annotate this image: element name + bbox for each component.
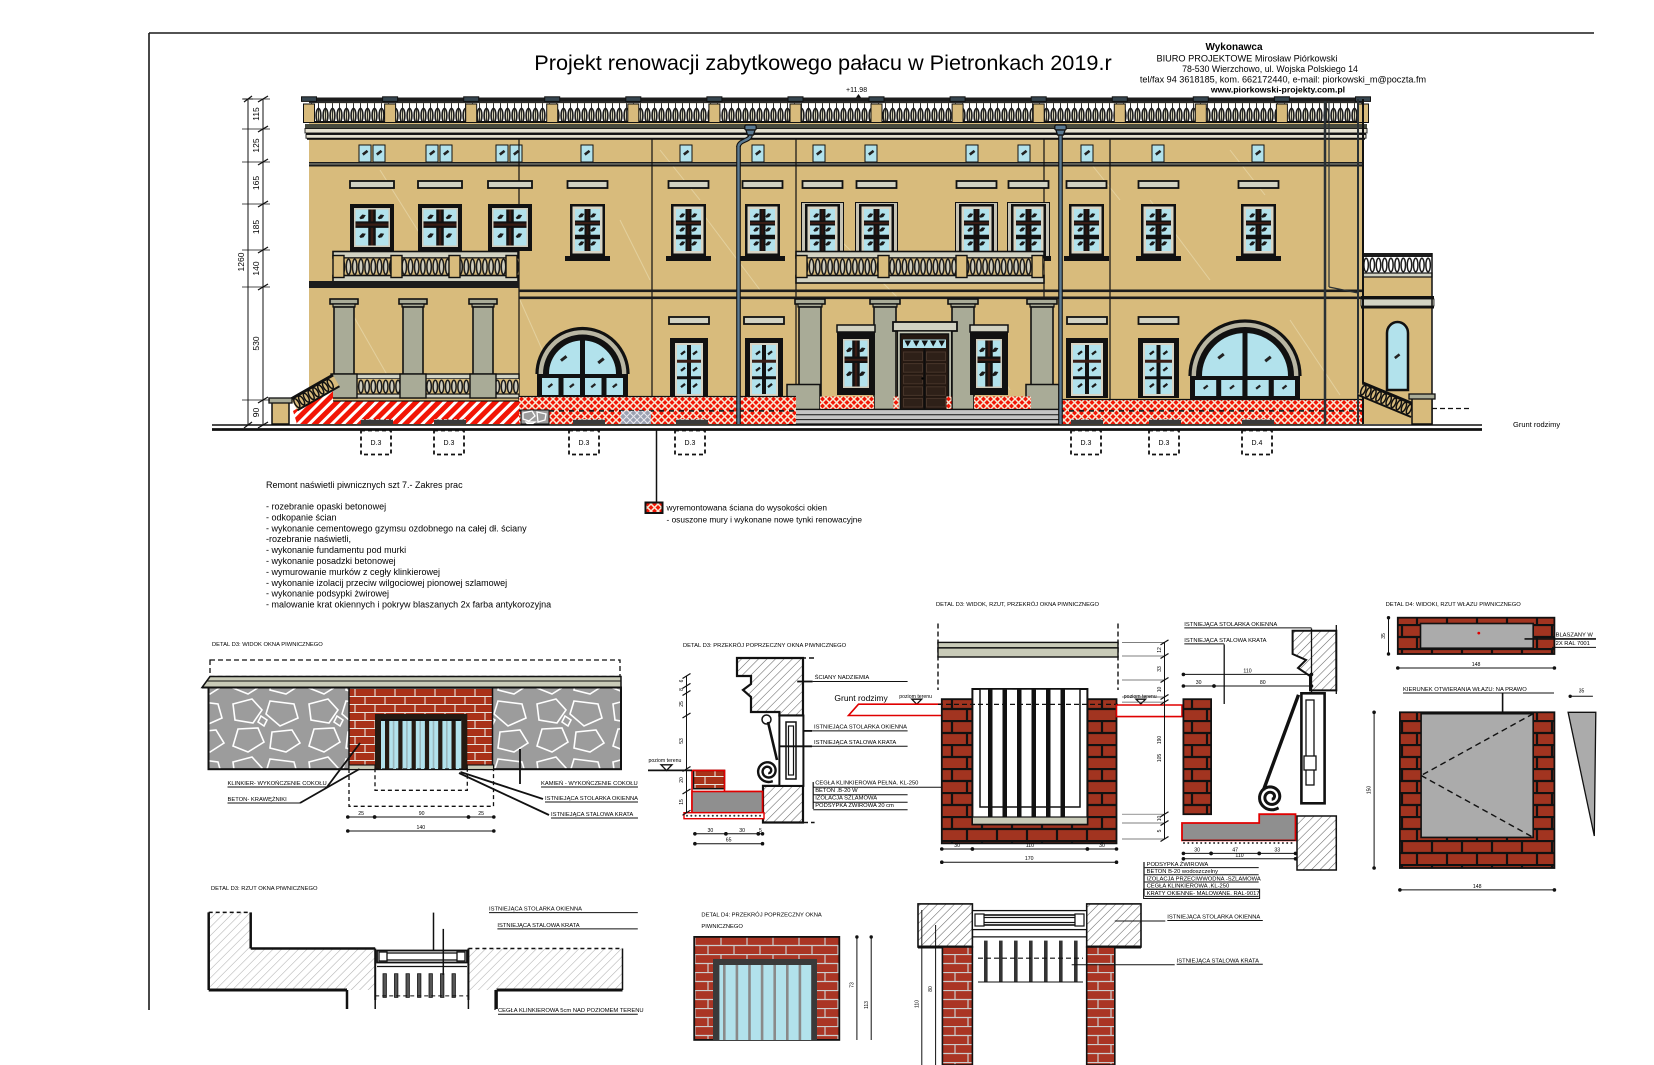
svg-text:6: 6 <box>679 679 685 682</box>
svg-text:- osuszone mury i wykonane now: - osuszone mury i wykonane nowe tynki re… <box>667 515 863 525</box>
svg-text:DETAL D4: WIDOKI, RZUT WŁAZU P: DETAL D4: WIDOKI, RZUT WŁAZU PIWNICZNEGO <box>1386 602 1522 608</box>
svg-text:35: 35 <box>1579 689 1585 695</box>
svg-text:D.3: D.3 <box>685 440 696 447</box>
svg-text:2X RAL 7001: 2X RAL 7001 <box>1556 641 1590 647</box>
svg-text:ISTNIEJĄCA STALOWA KRATA: ISTNIEJĄCA STALOWA KRATA <box>551 812 633 818</box>
svg-text:BLASZANY W: BLASZANY W <box>1556 633 1594 639</box>
svg-text:- wykonanie izolacij przeciw w: - wykonanie izolacij przeciw wilgociowej… <box>266 578 507 588</box>
svg-text:poziom terenu: poziom terenu <box>649 758 682 764</box>
svg-text:Projekt renowacji zabytkowego: Projekt renowacji zabytkowego pałacu w P… <box>534 50 1111 75</box>
svg-text:33: 33 <box>1157 666 1163 672</box>
svg-text:Grunt rodzimy: Grunt rodzimy <box>1513 420 1560 429</box>
svg-text:33: 33 <box>1274 847 1280 853</box>
svg-text:- wykonanie fundamentu pod mur: - wykonanie fundamentu pod murki <box>266 545 406 555</box>
svg-text:530: 530 <box>251 336 261 350</box>
svg-text:ISTNIEJĄCA STALOWA KRATA: ISTNIEJĄCA STALOWA KRATA <box>497 923 579 929</box>
svg-text:DETAL D3: WIDOK, RZUT, PRZEKRÓ: DETAL D3: WIDOK, RZUT, PRZEKRÓJ OKNA PIW… <box>936 601 1099 608</box>
svg-text:ISTNIEJĄCA STOLARKA OKIENNA: ISTNIEJĄCA STOLARKA OKIENNA <box>1167 915 1260 921</box>
svg-text:BETON .B-20 W: BETON .B-20 W <box>815 788 858 794</box>
svg-text:KAMIEŃ - WYKOŃCZENIE COKOŁU: KAMIEŃ - WYKOŃCZENIE COKOŁU <box>541 780 638 787</box>
svg-text:165: 165 <box>251 176 261 190</box>
svg-text:- wykonanie cementowego gzyms: - wykonanie cementowego gzymsu ozdobnego… <box>266 523 527 533</box>
svg-text:DETAL D3: WIDOK OKNA PIWNICZNE: DETAL D3: WIDOK OKNA PIWNICZNEGO <box>212 642 323 648</box>
svg-text:- rozebranie opaski betonowej: - rozebranie opaski betonowej <box>266 502 386 512</box>
svg-text:- wykonanie posadzki betonowej: - wykonanie posadzki betonowej <box>266 556 396 566</box>
svg-text:10: 10 <box>1157 816 1163 822</box>
svg-text:DETAL D3: PRZEKRÓJ POPRZECZNY: DETAL D3: PRZEKRÓJ POPRZECZNY OKNA PIWNI… <box>683 642 847 649</box>
svg-text:115: 115 <box>251 107 261 121</box>
svg-text:8: 8 <box>679 688 685 691</box>
svg-text:CEGŁA KLINKIEROWA .KL-250: CEGŁA KLINKIEROWA .KL-250 <box>1147 884 1230 890</box>
svg-text:D.3: D.3 <box>371 440 382 447</box>
svg-text:CEGŁA KLINKIEROWA 5cm NAD POZI: CEGŁA KLINKIEROWA 5cm NAD POZIOMEM TEREN… <box>498 1008 644 1014</box>
svg-text:www.piorkowski-projekty.com.pl: www.piorkowski-projekty.com.pl <box>1210 85 1345 95</box>
svg-text:ISTNIEJĄCA STALOWA KRATA: ISTNIEJĄCA STALOWA KRATA <box>1177 958 1259 964</box>
svg-text:D.4: D.4 <box>1252 440 1263 447</box>
svg-text:ISTNIEJĄCA STOLARKA OKIENNA: ISTNIEJĄCA STOLARKA OKIENNA <box>814 724 907 730</box>
svg-text:30: 30 <box>1196 680 1202 686</box>
svg-text:30: 30 <box>739 828 745 834</box>
svg-text:20: 20 <box>679 777 685 783</box>
svg-text:35: 35 <box>1381 633 1387 639</box>
svg-text:150: 150 <box>1367 786 1373 795</box>
svg-text:wyremontowana ściana do wysoko: wyremontowana ściana do wysokości okien <box>666 503 828 513</box>
svg-text:30: 30 <box>1194 847 1200 853</box>
svg-text:90: 90 <box>251 408 261 418</box>
svg-text:D.3: D.3 <box>444 440 455 447</box>
svg-text:DETAL D4: PRZEKRÓJ POPRZECZNY: DETAL D4: PRZEKRÓJ POPRZECZNY OKNA <box>701 912 821 919</box>
svg-text:- malowanie krat okiennych i p: - malowanie krat okiennych i pokryw blas… <box>266 600 551 610</box>
svg-text:DETAL D3: RZUT OKNA PIWNICZNEG: DETAL D3: RZUT OKNA PIWNICZNEGO <box>211 886 318 892</box>
svg-text:25: 25 <box>478 811 484 817</box>
svg-text:80: 80 <box>928 986 934 992</box>
svg-text:CEGŁA KLINKIEROWA PEŁNA. KL-25: CEGŁA KLINKIEROWA PEŁNA. KL-250 <box>815 781 918 787</box>
svg-text:ISTNIEJĄCA STALOWA KRATA: ISTNIEJĄCA STALOWA KRATA <box>814 740 896 746</box>
svg-text:185: 185 <box>251 220 261 234</box>
svg-text:PODSYPKA ŻWIROWA 20 cm: PODSYPKA ŻWIROWA 20 cm <box>815 802 894 809</box>
svg-text:ISTNIEJĄCA STOLARKA OKIENNA: ISTNIEJĄCA STOLARKA OKIENNA <box>545 796 638 802</box>
svg-text:190: 190 <box>1157 736 1163 745</box>
svg-text:80: 80 <box>1260 680 1266 686</box>
svg-text:170: 170 <box>1025 856 1034 862</box>
svg-text:KLINKIER- WYKOŃCZENIE COKOŁU: KLINKIER- WYKOŃCZENIE COKOŁU <box>228 780 327 787</box>
svg-text:12: 12 <box>1157 647 1163 653</box>
svg-text:25: 25 <box>358 811 364 817</box>
svg-text:ISTNIEJĄCA STOLARKA OKIENNA: ISTNIEJĄCA STOLARKA OKIENNA <box>1184 622 1277 628</box>
svg-text:25: 25 <box>679 701 685 707</box>
svg-text:140: 140 <box>251 261 261 275</box>
svg-text:+11.98: +11.98 <box>846 87 867 94</box>
svg-text:Remont naświetli piwnicznych s: Remont naświetli piwnicznych szt 7.- Zak… <box>266 480 463 490</box>
svg-text:113: 113 <box>864 1001 870 1009</box>
svg-text:tel/fax 94 3618185, kom. 66217: tel/fax 94 3618185, kom. 662172440, e-ma… <box>1140 75 1426 85</box>
svg-text:5: 5 <box>759 828 762 834</box>
svg-text:ISTNIEJĄCA STOLARKA OKIENNA: ISTNIEJĄCA STOLARKA OKIENNA <box>489 907 582 913</box>
svg-text:BETON- KRAWĘŻNIKI: BETON- KRAWĘŻNIKI <box>228 796 288 803</box>
svg-text:78-530 Wierzchowo, ul. Wojska: 78-530 Wierzchowo, ul. Wojska Polskiego … <box>1182 64 1358 74</box>
svg-text:125: 125 <box>251 138 261 152</box>
svg-text:D.3: D.3 <box>579 440 590 447</box>
svg-text:90: 90 <box>419 811 425 817</box>
svg-text:110: 110 <box>1235 853 1243 859</box>
svg-text:Grunt rodzimy: Grunt rodzimy <box>834 693 888 703</box>
svg-text:BIURO PROJEKTOWE Mirosław Pió: BIURO PROJEKTOWE Mirosław Piórkowski <box>1156 54 1337 64</box>
svg-text:KIERUNEK OTWIERANIA WŁAZU: NA: KIERUNEK OTWIERANIA WŁAZU: NA PRAWO <box>1403 687 1527 693</box>
svg-text:PIWNICZNEGO: PIWNICZNEGO <box>701 924 743 930</box>
svg-text:140: 140 <box>416 825 425 831</box>
svg-text:30: 30 <box>1099 843 1105 849</box>
svg-text:-rozebranie naświetli,: -rozebranie naświetli, <box>266 534 351 544</box>
svg-text:15: 15 <box>679 799 685 805</box>
svg-text:5: 5 <box>1157 829 1163 832</box>
svg-text:- wymurowanie murków z cegły k: - wymurowanie murków z cegły klinkierowe… <box>266 567 440 577</box>
svg-text:30: 30 <box>708 828 714 834</box>
svg-text:110: 110 <box>914 1000 920 1008</box>
svg-text:D.3: D.3 <box>1081 440 1092 447</box>
svg-text:30: 30 <box>954 843 960 849</box>
svg-text:73: 73 <box>850 982 856 988</box>
svg-text:10: 10 <box>1157 687 1163 693</box>
svg-text:148: 148 <box>1473 884 1482 890</box>
svg-text:1260: 1260 <box>236 252 246 271</box>
svg-text:- wykonanie podsypki żwirowej: - wykonanie podsypki żwirowej <box>266 589 389 599</box>
svg-text:ŚCIANY NADZIEMIA: ŚCIANY NADZIEMIA <box>815 673 870 681</box>
svg-text:ISTNIEJĄCA STALOWA KRATA: ISTNIEJĄCA STALOWA KRATA <box>1184 638 1266 644</box>
svg-text:IZOLACJA SZLAMOWA: IZOLACJA SZLAMOWA <box>815 796 877 802</box>
svg-text:148: 148 <box>1472 662 1481 668</box>
svg-text:D.3: D.3 <box>1159 440 1170 447</box>
svg-text:65: 65 <box>726 838 732 844</box>
svg-text:KRATY OKIENNE- MALOWANE. RAL-9: KRATY OKIENNE- MALOWANE. RAL-9017 <box>1147 891 1260 897</box>
svg-text:105: 105 <box>1157 754 1163 763</box>
svg-text:- odkopanie ścian: - odkopanie ścian <box>266 512 337 522</box>
svg-text:110: 110 <box>1243 668 1251 674</box>
svg-text:Wykonawca: Wykonawca <box>1205 42 1262 53</box>
svg-text:53: 53 <box>679 738 685 744</box>
svg-text:110: 110 <box>1026 843 1034 849</box>
svg-text:PODSYPKA ŻWIROWA: PODSYPKA ŻWIROWA <box>1147 861 1209 868</box>
